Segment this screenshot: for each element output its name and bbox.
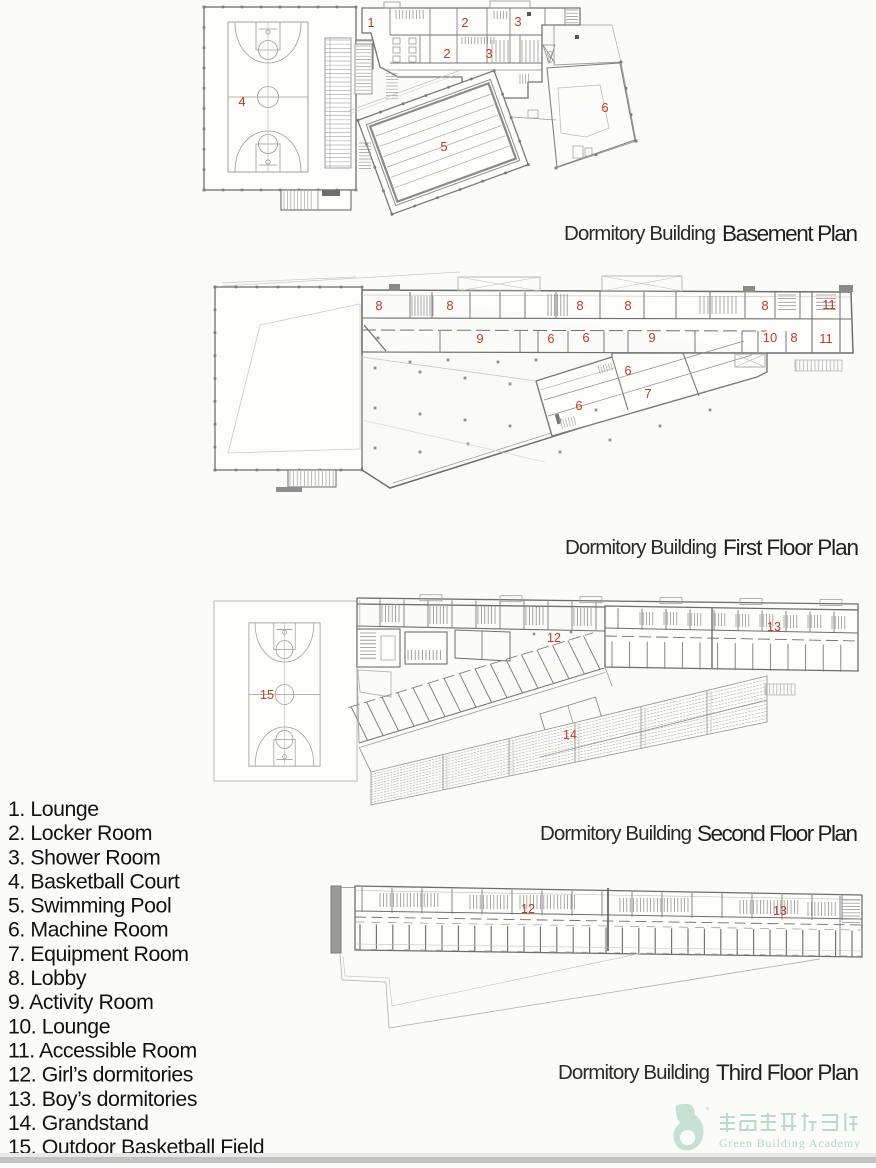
svg-text:Second Floor Plan: Second Floor Plan: [697, 821, 858, 846]
svg-text:10. Lounge: 10. Lounge: [8, 1014, 110, 1038]
svg-text:7: 7: [644, 386, 651, 401]
svg-text:4: 4: [238, 94, 245, 109]
svg-text:8: 8: [576, 298, 583, 313]
svg-text:8: 8: [790, 330, 797, 345]
svg-text:5. Swimming Pool: 5. Swimming Pool: [8, 894, 171, 918]
svg-text:11: 11: [822, 297, 836, 312]
svg-text:9. Activity Room: 9. Activity Room: [8, 990, 153, 1014]
svg-text:2: 2: [461, 15, 468, 30]
svg-text:3: 3: [514, 14, 521, 29]
svg-text:11. Accessible Room: 11. Accessible Room: [8, 1039, 197, 1063]
svg-text:8: 8: [761, 298, 768, 313]
svg-text:Basement Plan: Basement Plan: [722, 221, 858, 246]
svg-text:10: 10: [763, 330, 777, 345]
svg-text:6: 6: [575, 398, 582, 413]
svg-text:13: 13: [773, 904, 787, 918]
svg-text:4. Basketball Court: 4. Basketball Court: [8, 869, 180, 893]
svg-text:Dormitory Building: Dormitory Building: [558, 1061, 710, 1084]
svg-text:3: 3: [485, 46, 492, 61]
svg-text:6. Machine Room: 6. Machine Room: [8, 918, 168, 942]
svg-text:8: 8: [446, 298, 453, 313]
svg-text:14: 14: [563, 728, 577, 742]
svg-text:6: 6: [601, 100, 608, 115]
svg-text:1: 1: [367, 15, 374, 30]
svg-text:6: 6: [624, 363, 631, 378]
svg-text:9: 9: [648, 330, 655, 345]
svg-text:13. Boy’s dormitories: 13. Boy’s dormitories: [8, 1087, 197, 1111]
svg-text:First Floor Plan: First Floor Plan: [723, 535, 859, 560]
svg-text:12. Girl’s dormitories: 12. Girl’s dormitories: [8, 1063, 193, 1087]
svg-text:15: 15: [260, 688, 274, 702]
svg-text:6: 6: [582, 330, 589, 345]
svg-text:8: 8: [624, 298, 631, 313]
svg-text:11: 11: [819, 331, 833, 346]
svg-text:Green Building Academy: Green Building Academy: [719, 1136, 861, 1150]
svg-text:5: 5: [440, 139, 447, 154]
svg-text:2: 2: [443, 46, 450, 61]
svg-text:2. Locker Room: 2. Locker Room: [8, 821, 152, 845]
svg-text:13: 13: [767, 620, 781, 634]
svg-text:Dormitory Building: Dormitory Building: [565, 536, 717, 559]
svg-text:14. Grandstand: 14. Grandstand: [8, 1111, 149, 1135]
svg-text:7. Equipment Room: 7. Equipment Room: [8, 942, 189, 966]
svg-text:1. Lounge: 1. Lounge: [8, 797, 99, 821]
svg-text:3. Shower Room: 3. Shower Room: [8, 845, 160, 869]
svg-text:Dormitory Building: Dormitory Building: [564, 222, 716, 245]
svg-text:Dormitory Building: Dormitory Building: [540, 822, 692, 845]
svg-text:6: 6: [547, 331, 554, 346]
svg-text:Third Floor Plan: Third Floor Plan: [716, 1060, 859, 1085]
svg-text:12: 12: [521, 902, 535, 916]
svg-text:9: 9: [476, 331, 483, 346]
svg-text:8. Lobby: 8. Lobby: [8, 966, 87, 990]
svg-text:8: 8: [375, 298, 382, 313]
